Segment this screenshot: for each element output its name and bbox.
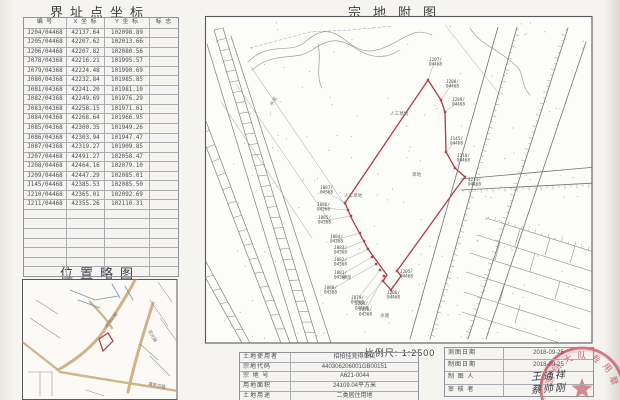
boundary-point-square: [427, 79, 429, 81]
boundary-coordinates-table: 编 号X 坐 标Y 坐 标标 志J204/0446842137.64102098…: [23, 17, 179, 277]
map-annotations: 水泥人工草地草地人工草地水泥水塘: [268, 95, 422, 319]
table-row: J087/0436842319.27101909.85: [24, 142, 178, 152]
table-row: J086/0436842303.94101947.47: [24, 133, 178, 143]
boundary-point-square: [445, 151, 447, 153]
info-row: 制图日期2018-09-25: [445, 359, 593, 371]
table-cell: 101990.69: [104, 67, 149, 76]
table-row: J084/0436842268.64101966.95: [24, 113, 178, 123]
boundary-point-square: [396, 270, 398, 272]
map-annotation-text: 草地: [412, 171, 422, 178]
table-cell: 42303.94: [66, 134, 104, 143]
handwritten-signature: 蔡帅刚: [530, 382, 567, 396]
road-lines: [410, 27, 596, 339]
table-cell: 101971.61: [104, 105, 149, 114]
railway-lines: [176, 28, 331, 343]
boundary-point-labels: J207/04468J208/04468J209/04468J145/04468…: [317, 57, 481, 317]
empty-cell: [24, 258, 66, 267]
empty-table-row: [24, 247, 178, 257]
table-cell: J207/04468: [24, 153, 66, 162]
table-row: J211/0446842355.26102110.31: [24, 199, 178, 209]
table-row: J082/0436842249.69101976.29: [24, 94, 178, 104]
empty-cell: [149, 267, 178, 276]
table-row: J207/0446842491.27102058.47: [24, 152, 178, 162]
info-label: 土地用途: [240, 392, 291, 400]
empty-cell: [104, 239, 149, 248]
sketch-paths: [28, 282, 176, 396]
info-label: 测图日期: [445, 348, 504, 359]
column-header: Y 坐 标: [104, 18, 149, 28]
empty-cell: [66, 239, 104, 248]
vegetation-dots: [215, 22, 584, 339]
empty-table-row: [24, 228, 178, 238]
info-row: 用地面积24109.04平方米: [240, 381, 418, 391]
table-cell: [149, 181, 178, 190]
empty-cell: [66, 210, 104, 219]
table-cell: 102092.69: [104, 191, 149, 200]
table-cell: 42319.27: [66, 143, 104, 152]
table-cell: 101966.95: [104, 114, 149, 123]
table-cell: J078/04368: [24, 57, 66, 66]
info-value: 440306206001GB00151: [291, 363, 418, 372]
boundary-point-square: [371, 256, 373, 258]
boundary-point-square: [454, 167, 456, 169]
sketch-roads: [20, 278, 178, 392]
empty-cell: [104, 219, 149, 228]
table-cell: J079/04368: [24, 67, 66, 76]
empty-cell: [149, 258, 178, 267]
boundary-point-square: [464, 176, 466, 178]
empty-table-row: [24, 238, 178, 248]
table-cell: [149, 57, 178, 66]
table-cell: [149, 38, 178, 47]
info-label: 制图日期: [445, 360, 504, 371]
info-value: 2018-09-25: [504, 360, 593, 371]
boundary-point-square: [344, 202, 346, 204]
table-cell: 42491.27: [66, 153, 104, 162]
table-header-row: 编 号X 坐 标Y 坐 标标 志: [24, 18, 178, 28]
table-cell: 102058.47: [104, 153, 149, 162]
table-cell: J084/04368: [24, 114, 66, 123]
table-row: J083/0436842258.15101971.61: [24, 104, 178, 114]
table-cell: [149, 67, 178, 76]
boundary-point-square: [375, 263, 377, 265]
sketch-road-labels: 城朔公路观光路塘家坊路: [103, 311, 167, 391]
empty-cell: [24, 219, 66, 228]
scanned-cadastral-document: 界址点坐标 宗地附图 位置略图 编 号X 坐 标Y 坐 标标 志J204/044…: [0, 0, 620, 400]
boundary-point-label: J080/04368: [324, 285, 337, 295]
empty-cell: [24, 229, 66, 238]
table-cell: 42241.20: [66, 86, 104, 95]
boundary-point-label: J083/04368: [334, 245, 347, 255]
boundary-point-square: [359, 232, 361, 234]
table-cell: [149, 105, 178, 114]
table-cell: 42216.21: [66, 57, 104, 66]
info-label: 用地面积: [240, 382, 291, 391]
table-cell: [149, 191, 178, 200]
boundary-point-square: [363, 240, 365, 242]
empty-cell: [104, 210, 149, 219]
boundary-point-label: J207/04468: [429, 57, 442, 67]
column-header: 编 号: [24, 18, 66, 28]
table-cell: [149, 76, 178, 85]
sketch-frame: [23, 280, 178, 400]
empty-cell: [149, 219, 178, 228]
sketch-road-label: 城朔公路: [103, 311, 120, 330]
info-label: 宗 地 号: [240, 372, 291, 381]
table-cell: 42249.69: [66, 95, 104, 104]
column-header: X 坐 标: [66, 18, 104, 28]
boundary-point-label: J211/04468: [468, 177, 481, 187]
table-cell: [149, 114, 178, 123]
table-cell: 42385.53: [66, 181, 104, 190]
table-cell: J087/04368: [24, 143, 66, 152]
table-cell: [149, 48, 178, 57]
table-cell: [149, 153, 178, 162]
empty-table-row: [24, 218, 178, 228]
table-cell: J210/04468: [24, 191, 66, 200]
table-cell: J208/04468: [24, 162, 66, 171]
table-cell: J083/04368: [24, 105, 66, 114]
table-cell: 101981.10: [104, 86, 149, 95]
table-cell: 101985.85: [104, 76, 149, 85]
info-value: 蔡帅刚: [504, 384, 593, 397]
boundary-point-label: J078/04368: [359, 307, 372, 317]
table-cell: J086/04368: [24, 134, 66, 143]
boundary-point-markers: [344, 79, 466, 291]
empty-table-row: [24, 209, 178, 219]
column-header: 标 志: [149, 18, 178, 28]
table-cell: 101976.29: [104, 95, 149, 104]
table-cell: J082/04368: [24, 95, 66, 104]
boundary-point-square: [367, 248, 369, 250]
table-cell: 42464.16: [66, 162, 104, 171]
empty-cell: [104, 229, 149, 238]
boundary-point-label: J210/04468: [457, 153, 470, 163]
table-cell: 42447.29: [66, 172, 104, 181]
table-cell: J206/04468: [24, 48, 66, 57]
empty-cell: [104, 267, 149, 276]
empty-cell: [24, 248, 66, 257]
parcel-info-table: 土地使用者招拍挂竞得单位宗地代码440306206001GB00151宗 地 号…: [239, 352, 419, 400]
empty-cell: [149, 210, 178, 219]
railway-hatching: [176, 28, 318, 343]
table-row: J085/0436842300.35101949.26: [24, 123, 178, 133]
table-cell: 42137.64: [66, 29, 104, 38]
handwritten-signature: 王通祥: [530, 370, 567, 384]
info-row: 审 核 者蔡帅刚: [445, 384, 593, 396]
table-row: J209/0446842447.29102085.01: [24, 171, 178, 181]
table-cell: [149, 200, 178, 209]
table-cell: 42207.82: [66, 48, 104, 57]
info-value: 24109.04平方米: [291, 382, 418, 391]
map-annotation-text: 水泥: [268, 95, 279, 107]
table-cell: [149, 162, 178, 171]
boundary-point-square: [379, 269, 381, 271]
map-frame: [206, 17, 593, 344]
map-annotation-text: 人工草地: [390, 110, 409, 117]
stream-lines: [248, 25, 530, 95]
empty-cell: [66, 258, 104, 267]
table-cell: 102098.89: [104, 29, 149, 38]
table-cell: 42300.35: [66, 124, 104, 133]
empty-cell: [66, 267, 104, 276]
boundary-point-square: [383, 275, 385, 277]
table-cell: 101949.26: [104, 124, 149, 133]
empty-cell: [149, 239, 178, 248]
sketch-parcel-outline: [99, 333, 113, 351]
table-cell: 101995.57: [104, 57, 149, 66]
sketch-road-label: 塘家坊路: [148, 380, 167, 391]
table-cell: 102080.56: [104, 48, 149, 57]
empty-cell: [104, 248, 149, 257]
table-cell: J081/04368: [24, 86, 66, 95]
table-cell: J209/04468: [24, 172, 66, 181]
field-boundaries: [462, 218, 597, 343]
boundary-point-label: J079/04368: [351, 295, 364, 305]
table-cell: [149, 95, 178, 104]
info-row: 土地用途二类居住用地: [240, 391, 418, 400]
info-label: 审 核 者: [445, 385, 504, 396]
info-label: 土地使用者: [240, 353, 291, 362]
table-cell: 102110.31: [104, 200, 149, 209]
info-row: 宗地代码440306206001GB00151: [240, 362, 418, 372]
boundary-point-label: J206/04468: [387, 290, 400, 300]
table-cell: J145/04468: [24, 181, 66, 190]
table-cell: [149, 172, 178, 181]
table-row: J080/0436842232.84101985.85: [24, 75, 178, 85]
table-cell: 42232.84: [66, 76, 104, 85]
table-cell: J205/04468: [24, 38, 66, 47]
table-row: J205/0446842207.62102013.66: [24, 37, 178, 47]
table-cell: 42224.48: [66, 67, 104, 76]
info-row: 土地使用者招拍挂竞得单位: [240, 353, 418, 362]
table-row: J079/0436842224.48101990.69: [24, 66, 178, 76]
info-row: 制 图 人王通祥: [445, 371, 593, 383]
sketch-stream: [70, 284, 133, 308]
empty-table-row: [24, 266, 178, 276]
table-cell: J211/04468: [24, 200, 66, 209]
map-annotation-text: 人工草地: [344, 192, 363, 199]
survey-info-table: 测图日期2018-09-25制图日期2018-09-25制 图 人王通祥审 核 …: [444, 347, 594, 397]
table-cell: 102013.66: [104, 38, 149, 47]
empty-cell: [24, 210, 66, 219]
boundary-point-label: J145/04468: [450, 136, 463, 146]
info-label: 宗地代码: [240, 363, 291, 372]
table-row: J078/0436842216.21101995.57: [24, 56, 178, 66]
table-row: J145/0446842385.53102085.50: [24, 180, 178, 190]
boundary-point-label: J087/04368: [320, 185, 333, 195]
table-cell: [149, 124, 178, 133]
boundary-point-square: [390, 289, 392, 291]
table-cell: J204/04468: [24, 29, 66, 38]
boundary-point-label: J204/04468: [355, 301, 368, 311]
empty-cell: [24, 239, 66, 248]
sketch-road-label: 观光路: [146, 329, 159, 344]
table-cell: J080/04368: [24, 76, 66, 85]
table-cell: 42268.64: [66, 114, 104, 123]
table-cell: [149, 134, 178, 143]
table-cell: 42258.15: [66, 105, 104, 114]
boundary-point-label: J082/04368: [334, 257, 347, 267]
boundary-point-label: J209/04468: [452, 97, 465, 107]
info-label: 制 图 人: [445, 372, 504, 383]
boundary-point-label: J205/04468: [400, 269, 413, 279]
table-cell: 42365.01: [66, 191, 104, 200]
slope-hatching: [431, 29, 595, 338]
parcel-map-title: 宗地附图: [288, 2, 508, 21]
scan-edge-left: [0, 0, 14, 400]
boundary-point-label: J085/04368: [318, 215, 331, 225]
table-cell: 102079.10: [104, 162, 149, 171]
table-cell: [149, 29, 178, 38]
boundary-point-square: [382, 280, 384, 282]
boundary-point-label: J086/04368: [317, 202, 330, 212]
sketch-map: 城朔公路观光路塘家坊路: [20, 278, 178, 396]
scan-edge-right: [604, 0, 620, 400]
boundary-point-square: [347, 209, 349, 211]
table-cell: [149, 143, 178, 152]
boundary-point-square: [444, 111, 446, 113]
empty-cell: [149, 229, 178, 238]
empty-cell: [66, 219, 104, 228]
table-row: J208/0446842464.16102079.10: [24, 161, 178, 171]
map-annotation-text: 水泥: [342, 274, 352, 281]
parcel-boundary-polygon: [345, 80, 465, 290]
table-row: J210/0446842365.01102092.69: [24, 190, 178, 200]
empty-cell: [24, 267, 66, 276]
empty-cell: [104, 258, 149, 267]
table-cell: 102085.50: [104, 181, 149, 190]
table-cell: 101909.85: [104, 143, 149, 152]
table-cell: 42355.26: [66, 200, 104, 209]
map-topography: J207/04468J208/04468J209/04468J145/04468…: [176, 22, 597, 343]
empty-cell: [66, 248, 104, 257]
table-cell: 102085.01: [104, 172, 149, 181]
boundary-point-square: [440, 99, 442, 101]
fence-lines: [221, 67, 345, 238]
boundary-point-label: J084/04368: [330, 234, 343, 244]
boundary-point-square: [350, 215, 352, 217]
boundary-point-label: J208/04468: [446, 79, 459, 89]
empty-cell: [66, 229, 104, 238]
label-leader-lines: [322, 63, 473, 313]
empty-cell: [149, 248, 178, 257]
info-value: 招拍挂竞得单位: [291, 353, 418, 362]
table-cell: 42207.62: [66, 38, 104, 47]
table-row: J204/0446842137.64102098.89: [24, 28, 178, 38]
table-cell: [149, 86, 178, 95]
table-row: J206/0446842207.82102080.56: [24, 47, 178, 57]
map-annotation-text: 水塘: [380, 312, 390, 319]
info-row: 宗 地 号A621-0044: [240, 371, 418, 381]
empty-table-row: [24, 257, 178, 267]
boundary-point-label: J081/04368: [334, 270, 347, 280]
info-row: 测图日期2018-09-25: [445, 348, 593, 359]
table-cell: 101947.47: [104, 134, 149, 143]
info-value: 2018-09-25: [504, 348, 593, 359]
info-value: 二类居住用地: [291, 392, 418, 400]
table-cell: J085/04368: [24, 124, 66, 133]
info-value: A621-0044: [291, 372, 418, 381]
table-row: J081/0436842241.20101981.10: [24, 85, 178, 95]
